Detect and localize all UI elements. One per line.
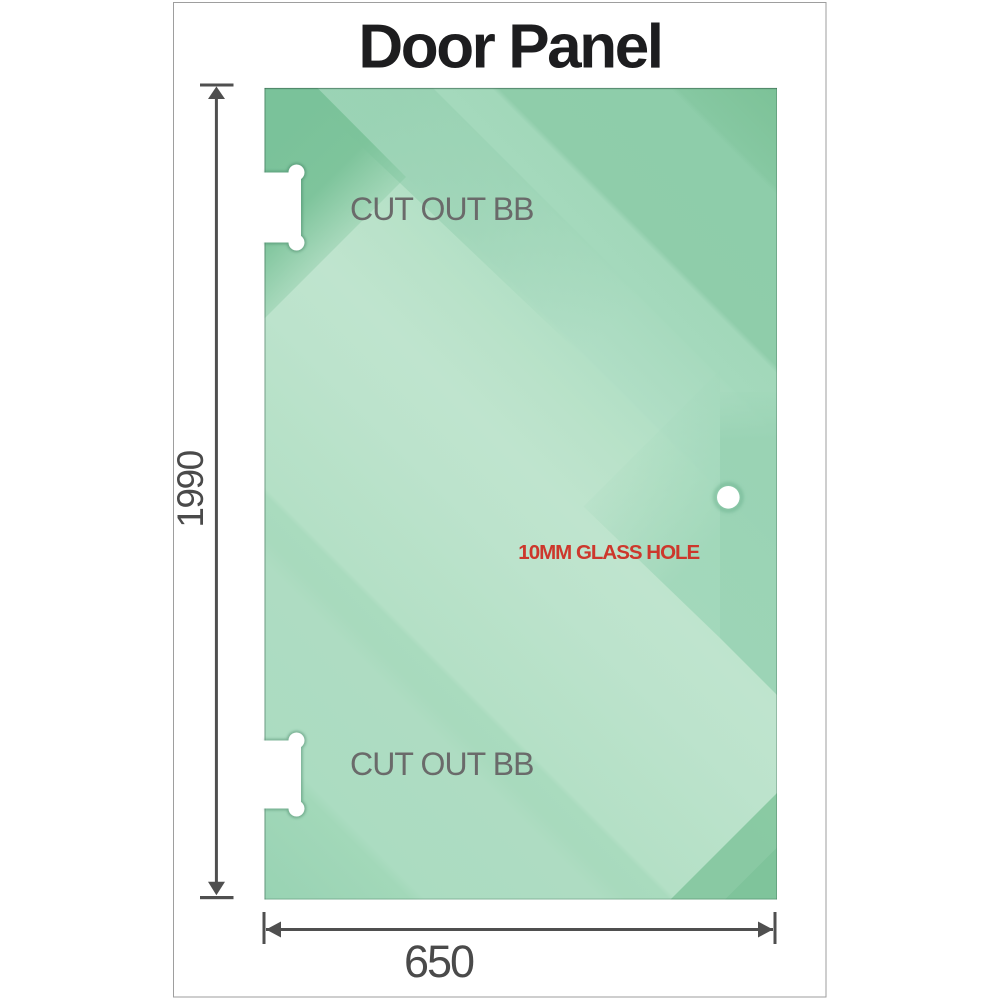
svg-text:Door Panel: Door Panel xyxy=(358,13,661,82)
svg-text:10MM GLASS HOLE: 10MM GLASS HOLE xyxy=(518,541,699,564)
svg-text:650: 650 xyxy=(404,936,474,987)
svg-text:CUT OUT BB: CUT OUT BB xyxy=(350,746,534,782)
svg-text:1990: 1990 xyxy=(170,450,211,527)
svg-text:CUT OUT BB: CUT OUT BB xyxy=(350,191,534,227)
